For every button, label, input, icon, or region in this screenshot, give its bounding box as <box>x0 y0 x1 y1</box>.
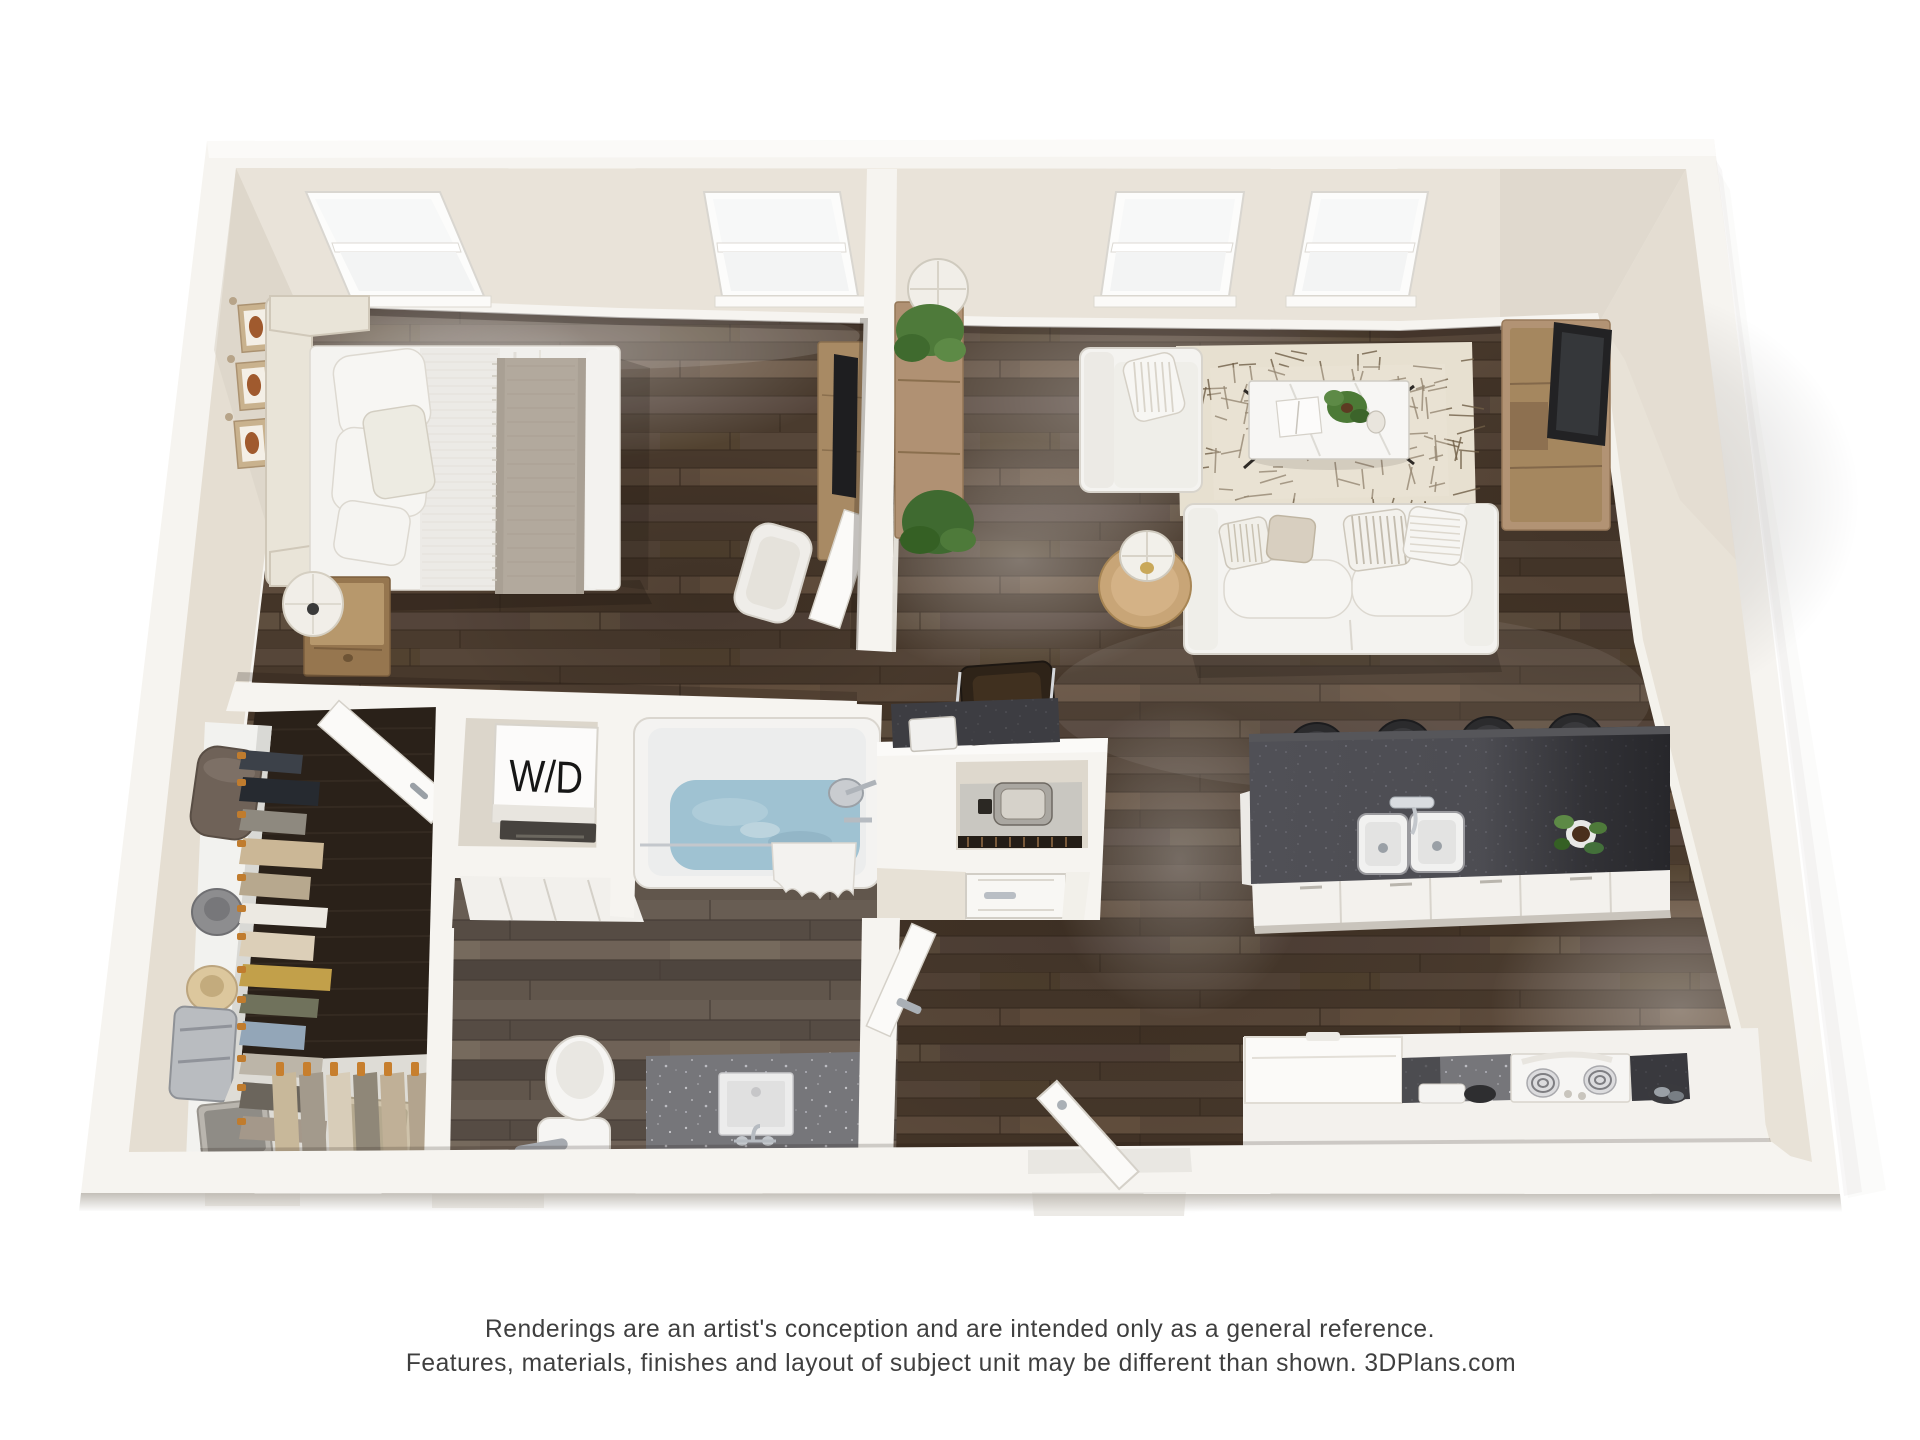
svg-text:Renderings are an artist's con: Renderings are an artist's conception an… <box>485 1316 1435 1343</box>
svg-text:Features, materials, finishes: Features, materials, finishes and layout… <box>406 1350 1516 1377</box>
svg-text:W/D: W/D <box>508 750 584 804</box>
